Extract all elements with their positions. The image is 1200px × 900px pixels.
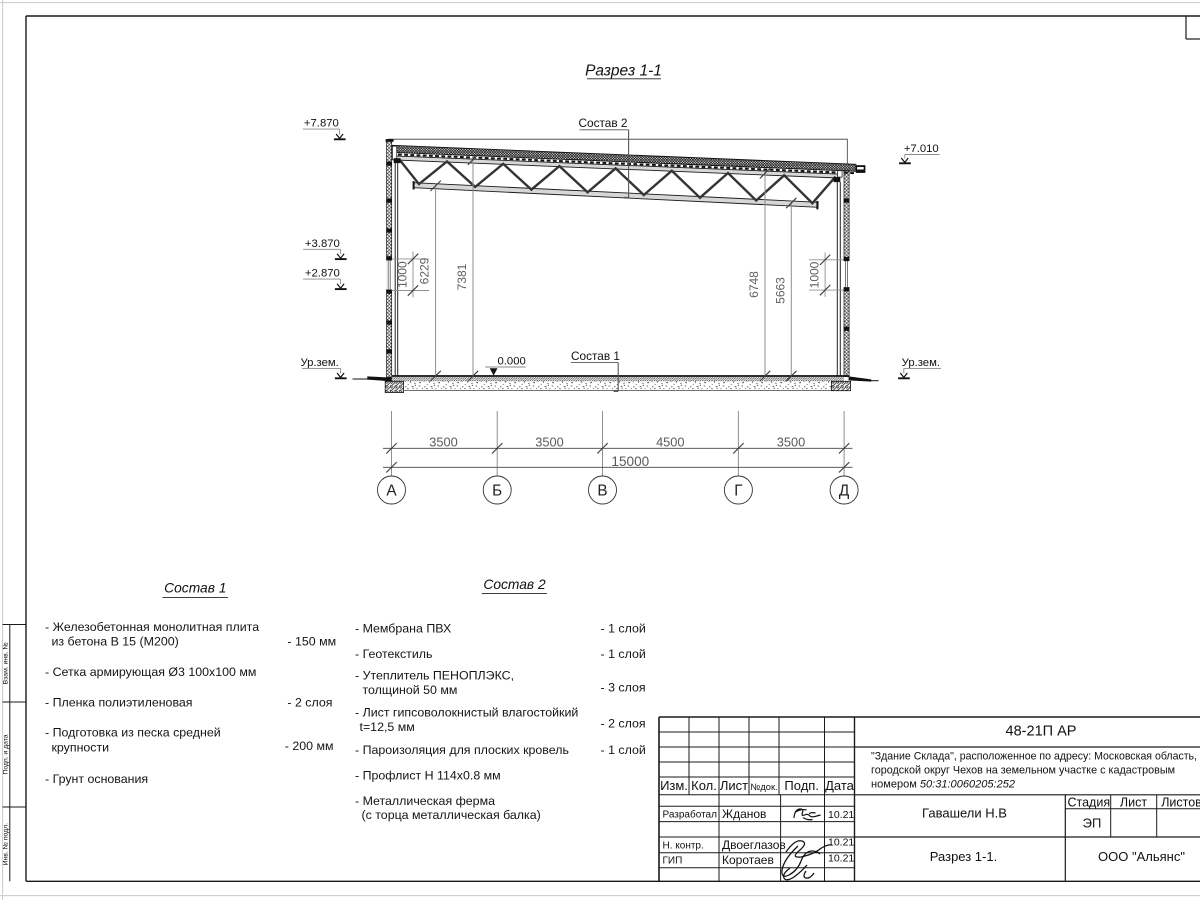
svg-text:Подп. и дата: Подп. и дата: [2, 734, 9, 774]
svg-text:+3.870: +3.870: [305, 238, 340, 250]
svg-text:- Грунт основания: - Грунт основания: [45, 772, 148, 786]
svg-text:толщиной 50 мм: толщиной 50 мм: [363, 683, 458, 697]
svg-text:городской округ Чехов на земел: городской округ Чехов на земельном участ…: [871, 765, 1175, 777]
svg-text:- Мембрана ПВХ: - Мембрана ПВХ: [355, 622, 451, 636]
svg-text:48-21П АР: 48-21П АР: [1006, 724, 1077, 740]
svg-text:3500: 3500: [777, 434, 805, 449]
svg-text:3500: 3500: [429, 434, 457, 449]
svg-text:Разработал: Разработал: [663, 809, 718, 821]
svg-text:15000: 15000: [611, 454, 649, 469]
svg-text:Состав 2: Состав 2: [579, 116, 628, 130]
svg-text:- 2 слоя: - 2 слоя: [287, 695, 332, 709]
svg-text:+7.010: +7.010: [904, 143, 939, 155]
svg-text:Н. контр.: Н. контр.: [663, 841, 704, 852]
svg-text:- 150 мм: - 150 мм: [287, 635, 336, 649]
svg-text:10.21: 10.21: [828, 837, 854, 849]
svg-text:Листов: Листов: [1161, 795, 1200, 809]
svg-text:Б: Б: [492, 482, 502, 499]
svg-text:7381: 7381: [455, 263, 469, 290]
svg-text:Разрез 1-1: Разрез 1-1: [585, 62, 662, 79]
svg-text:номером 50:31:0060205:252: номером 50:31:0060205:252: [871, 779, 1016, 791]
svg-text:4500: 4500: [656, 434, 684, 449]
svg-text:- 200 мм: - 200 мм: [285, 739, 334, 753]
svg-text:- Железобетонная монолитная п: - Железобетонная монолитная плита: [45, 620, 259, 634]
svg-text:В: В: [597, 482, 607, 499]
svg-text:Кол.: Кол.: [691, 778, 717, 793]
svg-text:- Пароизоляция для плоских кро: - Пароизоляция для плоских кровель: [355, 743, 569, 757]
svg-text:10.21: 10.21: [828, 853, 854, 865]
svg-text:Дата: Дата: [825, 778, 855, 793]
svg-text:Изм.: Изм.: [660, 778, 688, 793]
svg-text:- Геотекстиль: - Геотекстиль: [355, 647, 432, 661]
svg-text:6229: 6229: [418, 257, 432, 284]
svg-text:- Пленка полиэтиленовая: - Пленка полиэтиленовая: [45, 695, 193, 709]
svg-text:Жданов: Жданов: [722, 807, 766, 821]
svg-text:Лист: Лист: [720, 778, 748, 793]
svg-text:Ур.зем.: Ур.зем.: [902, 357, 940, 369]
svg-text:Г: Г: [734, 482, 742, 499]
svg-text:- 1 слой: - 1 слой: [601, 743, 646, 757]
svg-text:10.21: 10.21: [828, 809, 854, 821]
svg-text:- 1 слой: - 1 слой: [601, 647, 646, 661]
svg-text:5663: 5663: [773, 277, 787, 304]
svg-text:Взам. инв. №: Взам. инв. №: [2, 642, 9, 684]
svg-text:- 2 слоя: - 2 слоя: [601, 717, 646, 731]
svg-text:Стадия: Стадия: [1067, 795, 1110, 809]
svg-text:- Лист гипсоволокнистый влагос: - Лист гипсоволокнистый влагостойкий: [355, 706, 578, 720]
svg-text:из бетона В 15 (М200): из бетона В 15 (М200): [52, 635, 179, 649]
svg-text:Подп.: Подп.: [784, 778, 819, 793]
svg-text:- 1 слой: - 1 слой: [601, 622, 646, 636]
svg-text:t=12,5 мм: t=12,5 мм: [360, 720, 415, 734]
svg-text:(с торца металлическая балка): (с торца металлическая балка): [362, 808, 541, 822]
svg-text:- Утеплитель ПЕНОПЛЭКС,: - Утеплитель ПЕНОПЛЭКС,: [355, 669, 514, 683]
svg-text:- Профлист Н 114х0.8 мм: - Профлист Н 114х0.8 мм: [355, 769, 501, 783]
svg-text:Состав 1: Состав 1: [164, 581, 226, 596]
svg-text:Состав 1: Состав 1: [571, 349, 620, 363]
svg-text:1000: 1000: [807, 261, 821, 288]
svg-text:+2.870: +2.870: [305, 268, 340, 280]
svg-text:Лист: Лист: [1120, 795, 1147, 809]
svg-text:0.000: 0.000: [498, 356, 526, 368]
svg-text:Двоеглазов: Двоеглазов: [722, 838, 786, 852]
svg-text:Ур.зем.: Ур.зем.: [300, 357, 338, 369]
svg-text:Коротаев: Коротаев: [722, 853, 774, 867]
svg-text:ООО "Альянс": ООО "Альянс": [1098, 849, 1185, 864]
svg-text:Гавашели Н.В: Гавашели Н.В: [922, 806, 1007, 821]
svg-text:Инв. № подл.: Инв. № подл.: [2, 823, 9, 865]
svg-text:№док.: №док.: [750, 782, 777, 792]
svg-text:- Сетка армирующая Ø3 100x100: - Сетка армирующая Ø3 100x100 мм: [45, 665, 256, 679]
svg-text:6748: 6748: [747, 271, 761, 298]
svg-text:ГИП: ГИП: [663, 856, 683, 867]
svg-text:- Металлическая ферма: - Металлическая ферма: [355, 794, 495, 808]
svg-text:3500: 3500: [535, 434, 563, 449]
svg-text:А: А: [386, 482, 397, 499]
svg-text:1000: 1000: [395, 261, 409, 288]
svg-text:ЭП: ЭП: [1083, 816, 1102, 831]
svg-text:- 3 слоя: - 3 слоя: [601, 681, 646, 695]
svg-text:+7.870: +7.870: [304, 118, 339, 130]
svg-text:Д: Д: [839, 482, 850, 499]
svg-text:"Здание Склада", расположенное: "Здание Склада", расположенное по адресу…: [871, 751, 1197, 763]
svg-text:Разрез 1-1.: Разрез 1-1.: [930, 849, 997, 864]
svg-text:крупности: крупности: [52, 741, 110, 755]
svg-text:Состав 2: Состав 2: [483, 577, 546, 592]
svg-text:- Подготовка из песка средней: - Подготовка из песка средней: [45, 726, 221, 740]
